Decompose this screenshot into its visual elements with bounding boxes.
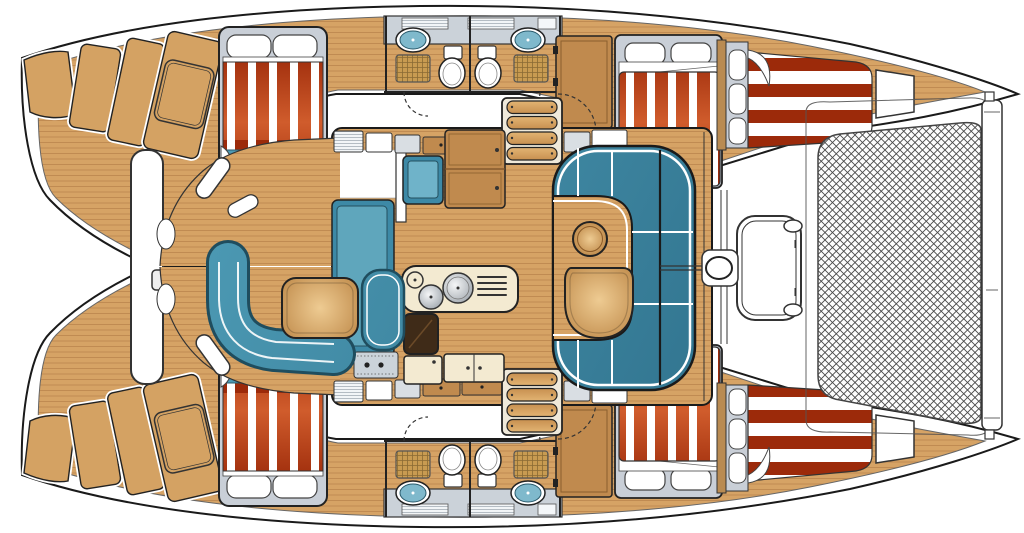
foredeck-locker-hatch <box>737 216 802 320</box>
cockpit-table <box>282 278 358 338</box>
entry-vestibule <box>333 150 403 198</box>
catamaran-floorplan <box>0 0 1024 533</box>
fridge <box>403 156 443 204</box>
cockpit-bench <box>362 270 404 350</box>
stool <box>573 222 607 256</box>
galley-cabinet <box>404 356 442 384</box>
cabinet <box>445 130 505 208</box>
dinette-table <box>565 268 633 338</box>
floorplan-canvas <box>0 0 1024 533</box>
bow-crossbeam <box>982 92 1002 439</box>
trampoline-net <box>818 123 981 424</box>
dinette <box>553 146 695 390</box>
trampoline <box>806 98 990 435</box>
